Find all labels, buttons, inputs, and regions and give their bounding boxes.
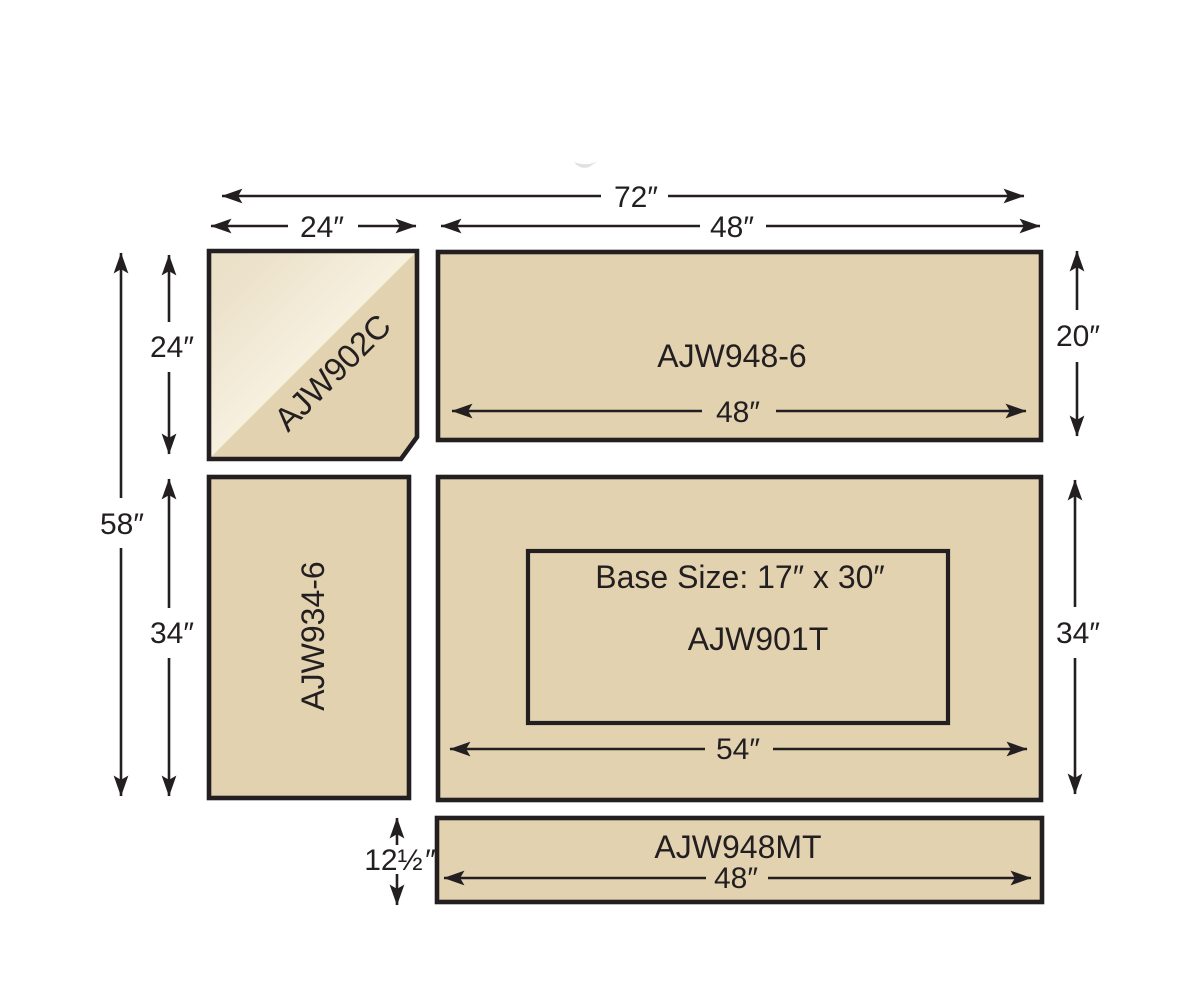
svg-text:58″: 58″ [100,508,144,541]
svg-text:72″: 72″ [614,181,658,214]
svg-text:AJW901T: AJW901T [688,621,828,657]
svg-text:AJW948-6: AJW948-6 [657,338,806,374]
svg-text:24″: 24″ [300,211,344,244]
svg-text:34″: 34″ [150,617,194,650]
svg-text:48″: 48″ [710,211,754,244]
svg-text:20″: 20″ [1056,320,1100,353]
svg-text:34″: 34″ [1056,617,1100,650]
svg-text:48″: 48″ [714,862,758,895]
svg-text:12½ ″: 12½ ″ [364,844,436,877]
svg-text:Base Size: 17″ x 30″: Base Size: 17″ x 30″ [595,559,884,595]
svg-text:AJW948MT: AJW948MT [654,829,821,865]
svg-text:24″: 24″ [150,331,194,364]
svg-text:54″: 54″ [716,733,760,766]
svg-text:AJW934-6: AJW934-6 [295,561,331,710]
svg-text:48″: 48″ [716,396,760,429]
